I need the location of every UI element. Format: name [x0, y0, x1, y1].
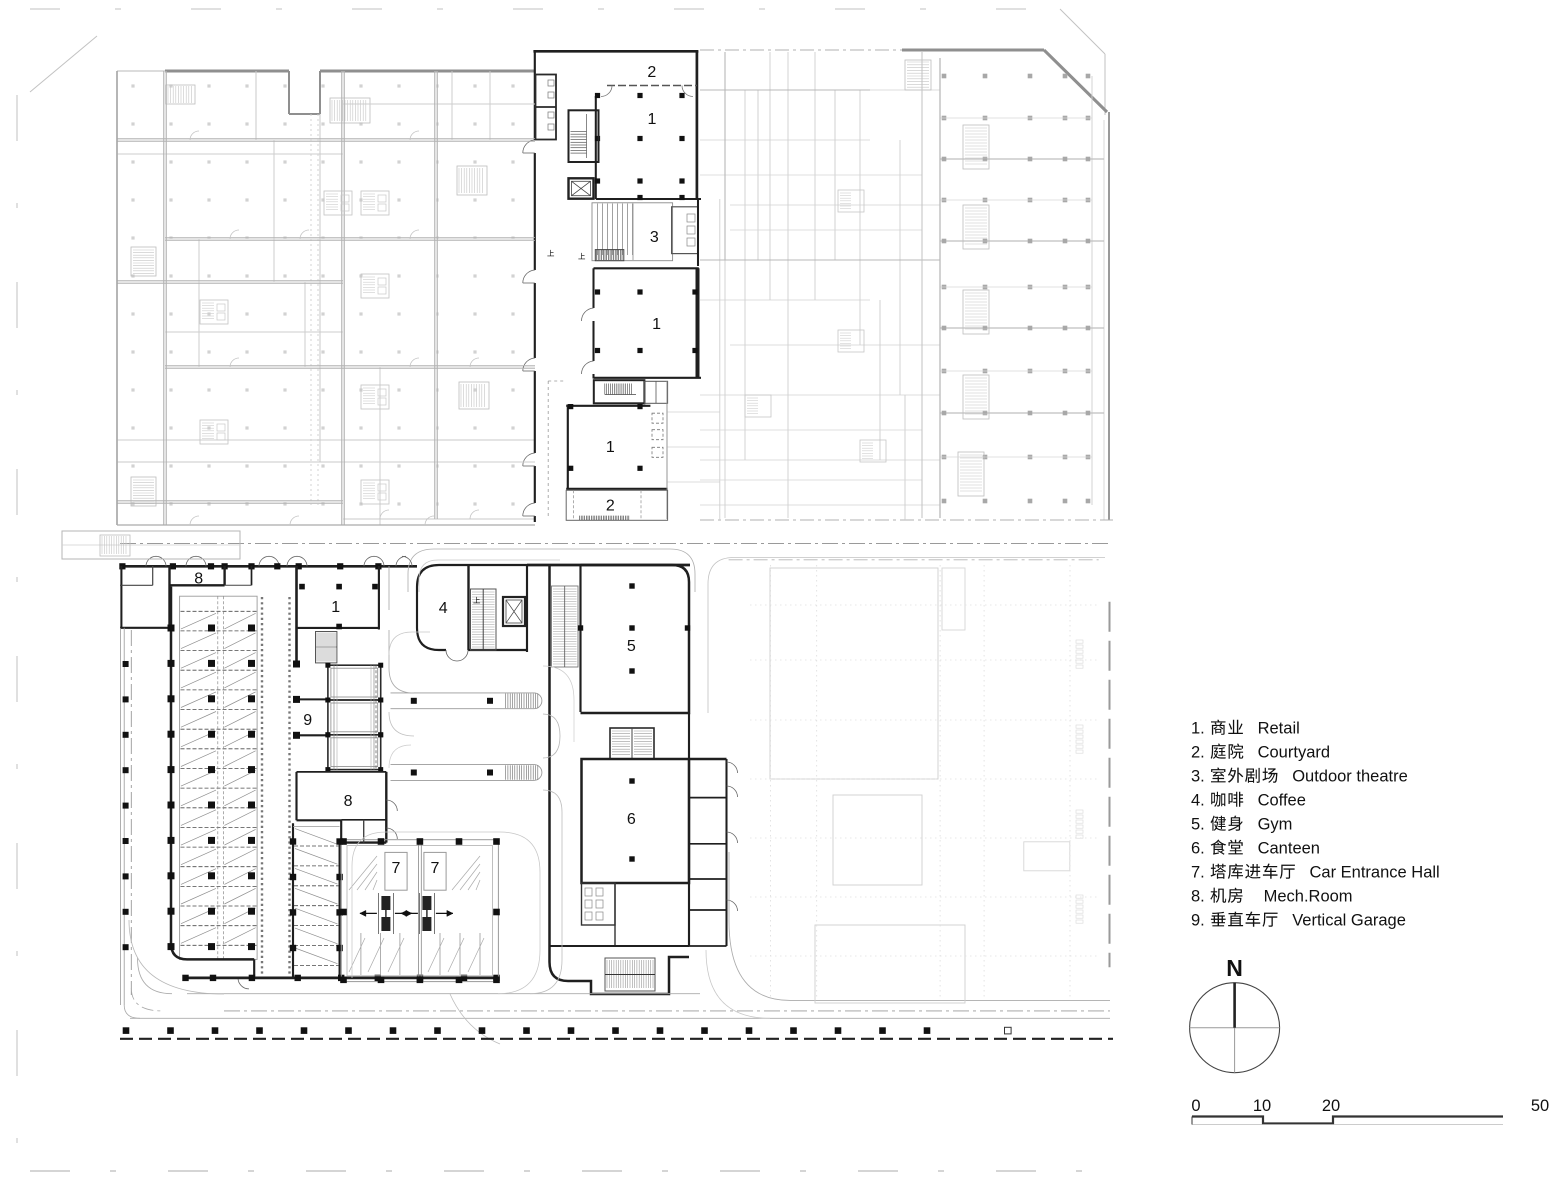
svg-text:3: 3	[650, 229, 659, 246]
svg-text:7: 7	[392, 860, 401, 877]
svg-text:6: 6	[627, 811, 636, 828]
svg-text:Outdoor theatre: Outdoor theatre	[1292, 768, 1408, 786]
svg-text:2: 2	[606, 498, 615, 515]
svg-text:1: 1	[606, 439, 615, 456]
svg-text:Retail: Retail	[1258, 720, 1300, 738]
svg-text:7.: 7.	[1191, 864, 1205, 882]
svg-text:5.: 5.	[1191, 816, 1205, 834]
svg-text:Car Entrance Hall: Car Entrance Hall	[1310, 864, 1440, 882]
svg-text:10: 10	[1253, 1097, 1271, 1115]
svg-text:8: 8	[194, 571, 203, 588]
svg-text:Coffee: Coffee	[1258, 792, 1306, 810]
svg-text:4: 4	[439, 600, 448, 617]
svg-text:3.: 3.	[1191, 768, 1205, 786]
svg-text:6.: 6.	[1191, 840, 1205, 858]
svg-text:Gym: Gym	[1258, 816, 1293, 834]
svg-text:9.: 9.	[1191, 912, 1205, 930]
svg-text:8.: 8.	[1191, 888, 1205, 906]
svg-text:7: 7	[431, 860, 440, 877]
svg-text:5: 5	[627, 638, 636, 655]
svg-text:2.: 2.	[1191, 744, 1205, 762]
svg-text:Mech.Room: Mech.Room	[1264, 888, 1353, 906]
svg-text:9: 9	[303, 712, 312, 729]
svg-text:N: N	[1226, 955, 1243, 981]
svg-text:1: 1	[331, 599, 340, 616]
svg-text:1: 1	[652, 316, 661, 333]
svg-text:1: 1	[648, 111, 657, 128]
svg-text:20: 20	[1322, 1097, 1340, 1115]
svg-text:Canteen: Canteen	[1258, 840, 1320, 858]
svg-text:Vertical Garage: Vertical Garage	[1292, 912, 1406, 930]
svg-text:1.: 1.	[1191, 720, 1205, 738]
svg-text:Courtyard: Courtyard	[1258, 744, 1330, 762]
svg-text:50: 50	[1531, 1097, 1549, 1115]
svg-text:0: 0	[1191, 1097, 1200, 1115]
svg-text:2: 2	[647, 64, 656, 81]
svg-text:4.: 4.	[1191, 792, 1205, 810]
svg-text:8: 8	[344, 793, 353, 810]
